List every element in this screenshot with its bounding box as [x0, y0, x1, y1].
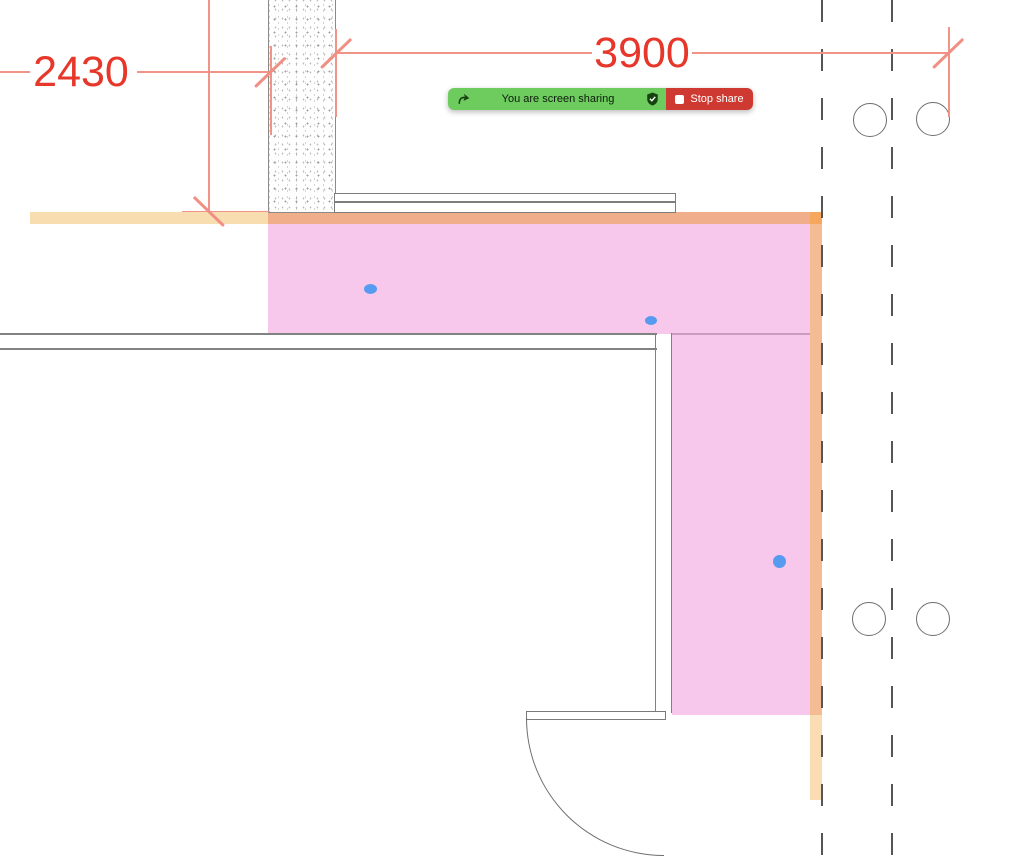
- pink-region-divider-line: [672, 333, 810, 335]
- dim-3900-text: 3900: [592, 32, 692, 75]
- blue-dot-marker-2: [645, 316, 657, 325]
- column-circle-top-left: [853, 103, 887, 137]
- window: [334, 193, 676, 213]
- stop-square-icon: [675, 95, 684, 104]
- blue-dot-marker-1: [364, 284, 377, 294]
- screen-share-bar: You are screen sharing Stop share: [448, 88, 753, 110]
- shield-check-icon: [646, 92, 659, 106]
- hatched-wall: [268, 0, 336, 213]
- column-circle-bottom-right: [916, 602, 950, 636]
- jamb-wall-right-line: [671, 333, 673, 713]
- window-midline: [335, 201, 675, 203]
- stop-share-button[interactable]: Stop share: [666, 88, 753, 110]
- dim-2430-line-left: [0, 71, 30, 73]
- screen-share-status-text: You are screen sharing: [470, 93, 646, 105]
- dim-2430-text: 2430: [28, 51, 134, 94]
- extension-line-wall-right: [335, 29, 337, 117]
- extension-line-3900-right: [948, 27, 950, 117]
- stop-share-label: Stop share: [690, 93, 743, 105]
- dim-3900-line-left: [336, 52, 592, 54]
- floor-plan-canvas: 2430 3900 You are screen sharing: [0, 0, 1024, 858]
- dim-3900-line-right: [692, 52, 948, 54]
- extension-line-wall-left: [270, 46, 272, 135]
- extension-line-2430: [208, 0, 210, 212]
- column-circle-top-right: [916, 102, 950, 136]
- interior-wall-bottom-line: [0, 348, 657, 350]
- jamb-wall-left-line: [655, 333, 657, 713]
- pink-highlight-vertical: [672, 334, 810, 715]
- column-circle-bottom-left: [852, 602, 886, 636]
- dim-2430-line-right: [137, 71, 270, 73]
- door-swing-arc: [526, 718, 664, 856]
- screen-share-phone-icon: [456, 92, 470, 106]
- grid-dashed-line-right: [891, 0, 893, 858]
- peach-band-left: [30, 212, 268, 224]
- screen-share-status: You are screen sharing: [448, 88, 666, 110]
- blue-dot-marker-3: [773, 555, 786, 568]
- interior-wall-top-line: [0, 333, 657, 335]
- grid-dashed-line-left: [821, 0, 823, 858]
- pink-highlight-horizontal: [268, 224, 810, 334]
- orange-band-horizontal: [268, 212, 810, 224]
- dim-witness-line-bottom: [182, 211, 270, 213]
